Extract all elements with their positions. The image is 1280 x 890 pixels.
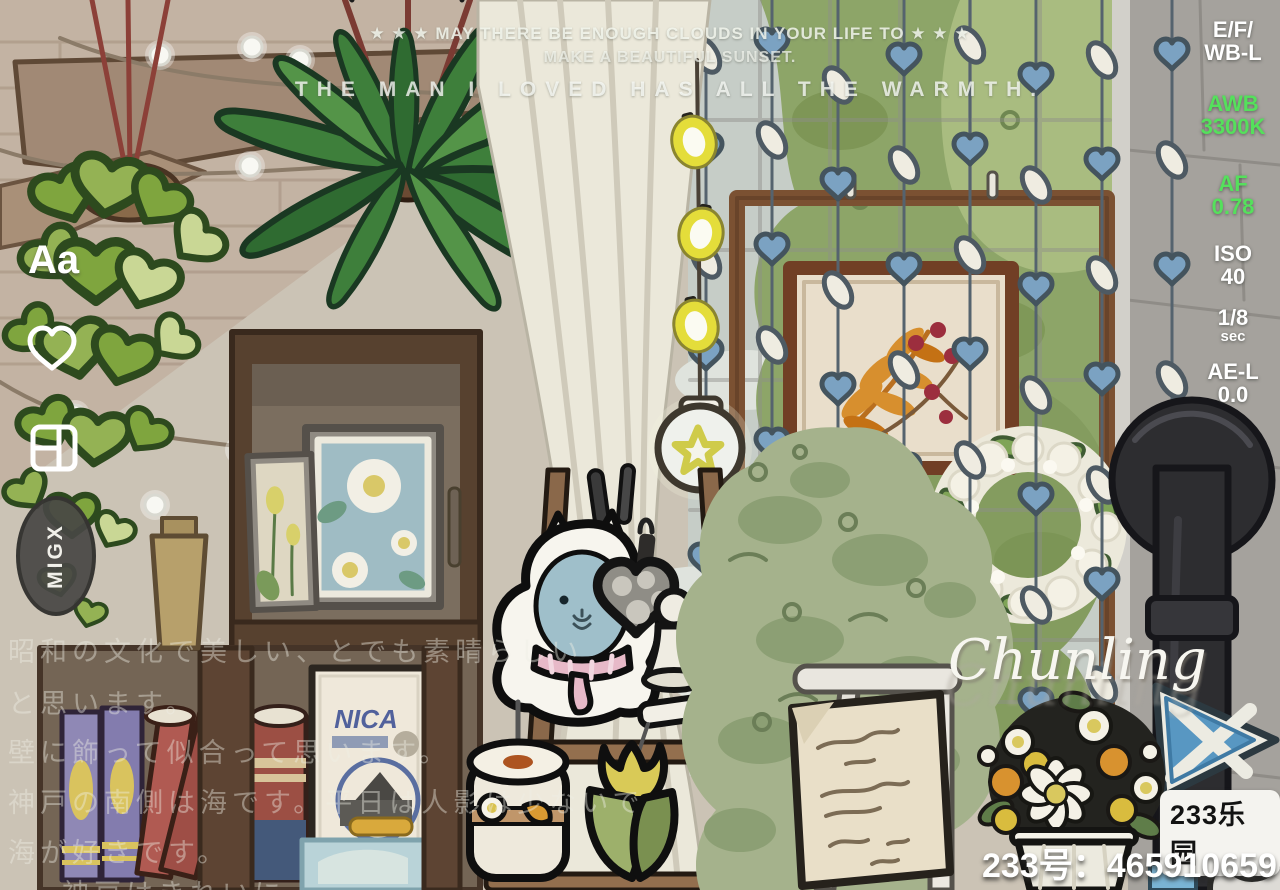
heart-icon[interactable]	[26, 324, 78, 376]
caption-line-2: MAKE A BEAUTIFUL SUNSET.	[330, 49, 1010, 67]
collage-layout-icon[interactable]	[28, 422, 80, 474]
hud-ae-lock[interactable]: AE-L0.0	[1188, 360, 1278, 406]
japanese-caption-line-1: 昭和の文化で美しい、とでも素晴らしい	[8, 630, 583, 669]
hud-exposure-wb-lock[interactable]: E/F/WB-L	[1188, 18, 1278, 64]
japanese-caption-line-6: 神戸はきれいに…	[62, 872, 318, 890]
tulip-frame	[247, 454, 316, 610]
japanese-caption-line-3: 壁に飾って似合って思います。	[8, 731, 451, 770]
caption-line-3: THE MAN I LOVED HAS ALL THE WARMTH.	[290, 78, 1050, 102]
text-tool-button[interactable]: Aa	[28, 238, 79, 283]
vase	[152, 518, 206, 648]
migx-sticker-button[interactable]: MIGX	[16, 496, 96, 616]
game-screenshot: NICA	[0, 0, 1280, 890]
room-id-text: 233号：465910659	[982, 838, 1277, 887]
japanese-caption-line-2: と思います。	[8, 682, 197, 721]
migx-sticker-label: MIGX	[44, 523, 68, 589]
signature-watermark: Chunling	[948, 628, 1207, 693]
japanese-caption-line-5: 海が好きです。	[8, 831, 229, 870]
svg-text:NICA: NICA	[334, 704, 398, 734]
caption-line-1: ★ ★ ★ MAY THERE BE ENOUGH CLOUDS IN YOUR…	[330, 24, 1010, 44]
japanese-caption-line-4: 神戸の南側は海です。平日は人影は少ないで	[8, 781, 645, 820]
hud-white-balance[interactable]: AWB3300K	[1188, 92, 1278, 138]
hud-shutter-speed[interactable]: 1/8sec	[1188, 306, 1278, 345]
hud-autofocus[interactable]: AF0.78	[1188, 172, 1278, 218]
glass-cabinet	[232, 332, 480, 648]
blue-flower-frame	[306, 428, 440, 606]
hud-iso[interactable]: ISO40	[1188, 242, 1278, 288]
